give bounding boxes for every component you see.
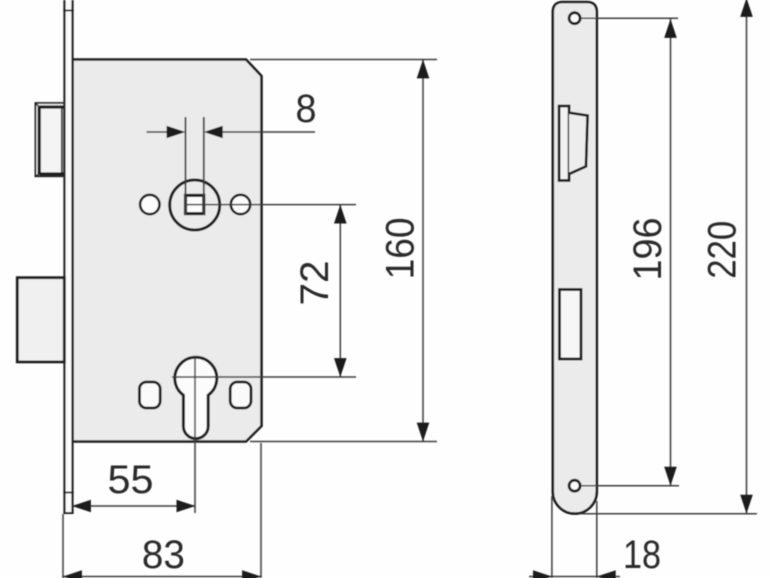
svg-text:8: 8 [296,87,317,131]
svg-text:196: 196 [626,218,670,281]
svg-text:72: 72 [293,261,337,306]
svg-text:18: 18 [623,533,661,577]
svg-text:83: 83 [142,533,185,577]
svg-text:220: 220 [701,221,745,279]
svg-text:55: 55 [108,458,154,502]
svg-text:160: 160 [379,217,423,279]
